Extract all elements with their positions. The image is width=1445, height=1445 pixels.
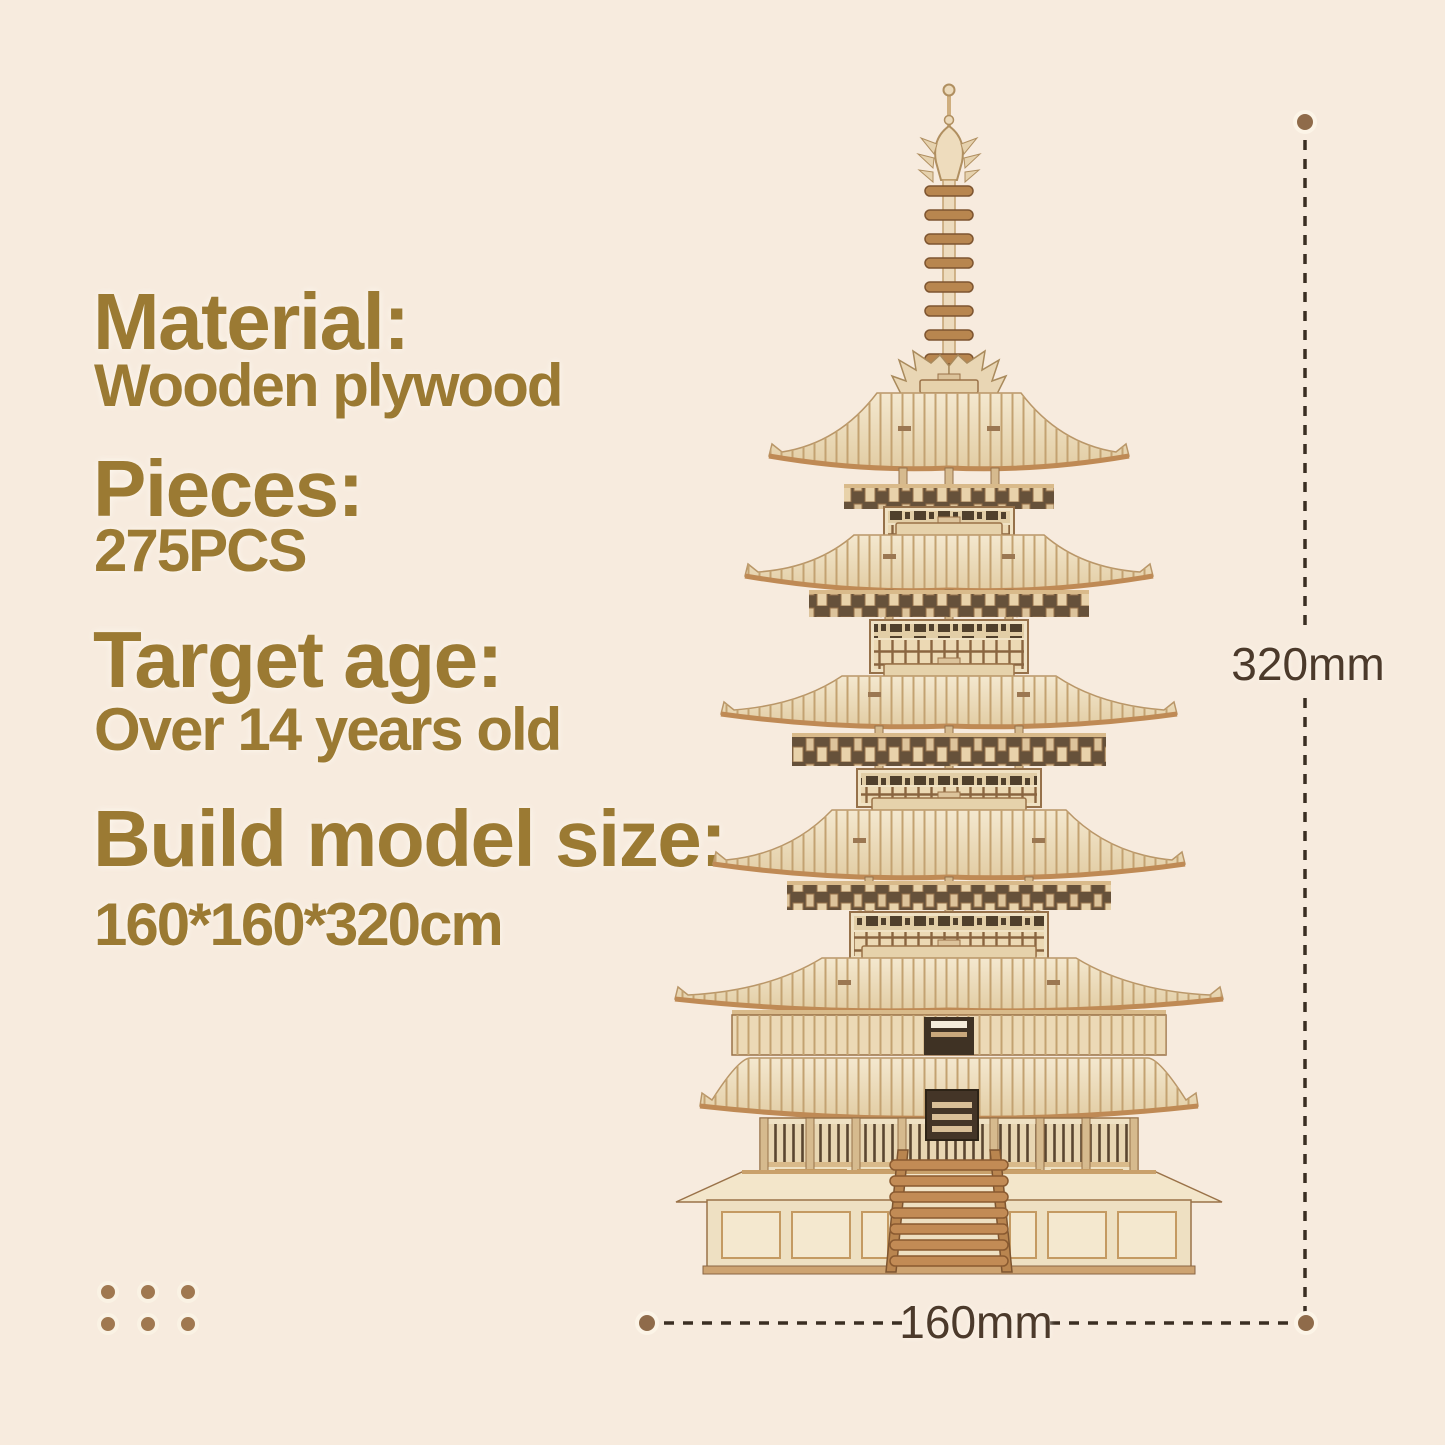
width-dimension-label: 160mm (899, 1299, 1052, 1345)
width-line-left-endpoint-dot (637, 1313, 657, 1333)
material-label: Material: (93, 282, 408, 362)
product-infographic: Material: Wooden plywood Pieces: 275PCS … (0, 0, 1445, 1445)
height-dimension-line (1295, 112, 1315, 1312)
width-line-right-endpoint-dot (1296, 1313, 1316, 1333)
pieces-value: 275PCS (94, 521, 305, 581)
material-value: Wooden plywood (94, 356, 562, 416)
wooden-pagoda-illustration (600, 60, 1290, 1280)
roof-tier-5 (769, 374, 1129, 469)
roof-tier-3 (721, 658, 1177, 727)
dot-grid-decoration (99, 1283, 197, 1333)
roof-tier-2 (713, 792, 1185, 878)
target-age-label: Target age: (93, 620, 502, 700)
target-age-value: Over 14 years old (94, 700, 560, 760)
height-dimension-label: 320mm (1231, 641, 1384, 687)
spire (892, 85, 1006, 397)
height-line-endpoint-dot (1295, 112, 1315, 132)
roof-tier-1 (675, 940, 1223, 1011)
roof-tier-4 (745, 517, 1153, 591)
frieze-band (732, 1010, 1166, 1055)
entrance-door (926, 1090, 978, 1140)
build-size-value: 160*160*320cm (94, 895, 502, 955)
